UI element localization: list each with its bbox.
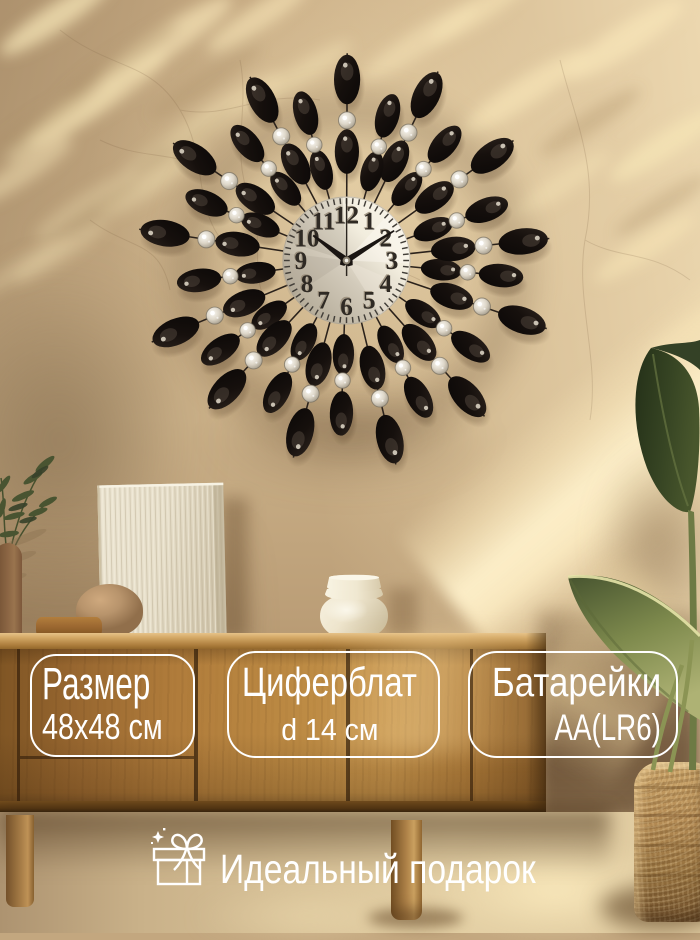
svg-text:7: 7 bbox=[317, 286, 330, 314]
svg-text:11: 11 bbox=[312, 207, 336, 235]
svg-text:5: 5 bbox=[363, 286, 376, 314]
svg-text:1: 1 bbox=[363, 207, 376, 235]
svg-text:4: 4 bbox=[380, 270, 393, 298]
svg-text:6: 6 bbox=[340, 293, 353, 321]
